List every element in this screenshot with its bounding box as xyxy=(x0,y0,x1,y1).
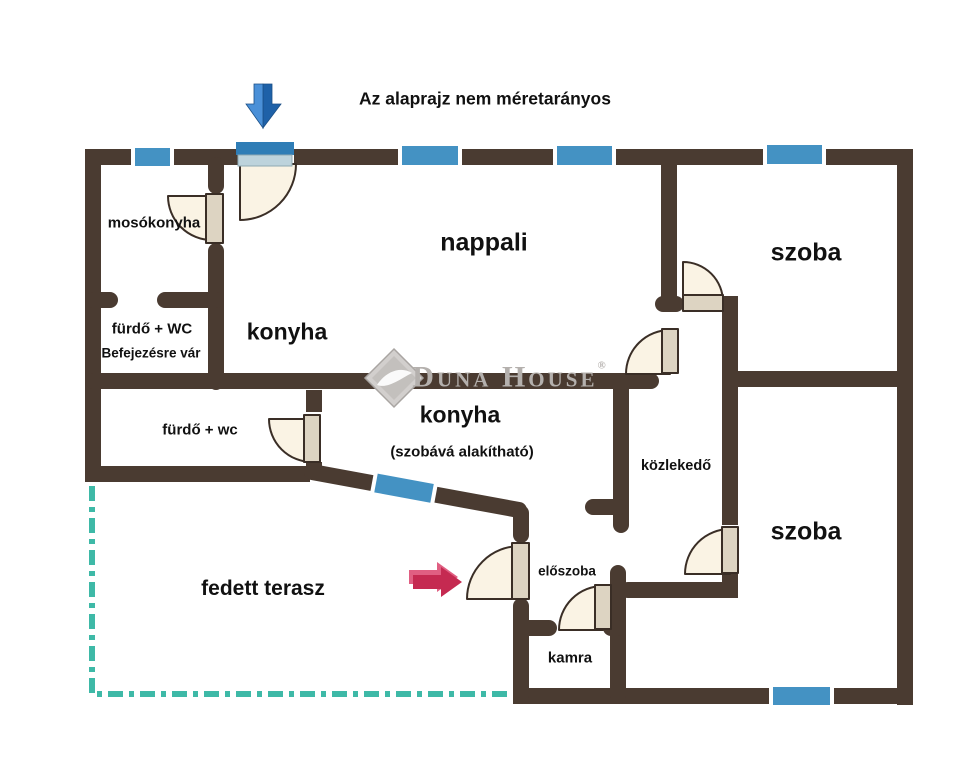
room-label-konyha-lower: konyha xyxy=(420,402,501,429)
watermark-registered-mark: ® xyxy=(597,360,605,372)
room-note-befejezesre-var: Befejezésre vár xyxy=(101,346,200,361)
door-leaf-bedroom-bottom xyxy=(722,527,738,573)
blue-down-arrow-icon xyxy=(246,84,281,128)
room-label-szoba-bottom: szoba xyxy=(771,518,842,547)
window-icon xyxy=(370,472,438,504)
room-label-nappali: nappali xyxy=(440,229,528,258)
watermark-brand: Duna House® xyxy=(412,360,605,395)
room-label-furdo-wc-upper: fürdő + WC xyxy=(112,321,192,338)
watermark-brand-text: Duna House xyxy=(412,361,597,394)
window-icon xyxy=(769,686,834,706)
window-icon xyxy=(131,147,174,167)
door-leaf-pantry xyxy=(595,585,611,629)
door-swing-top-entrance-icon xyxy=(240,164,296,220)
window-icon xyxy=(398,145,462,166)
window-icon xyxy=(763,144,826,165)
wall-hall-south xyxy=(628,573,730,590)
door-leaf-main-entrance xyxy=(512,543,529,599)
room-label-fedett-terasz: fedett terasz xyxy=(201,577,325,601)
window-icon xyxy=(553,145,616,166)
door-leaf-laundry xyxy=(206,194,223,243)
room-label-furdo-wc-lower: fürdő + wc xyxy=(162,422,237,439)
room-label-kozlekedo: közlekedő xyxy=(641,458,711,474)
room-label-konyha-upper: konyha xyxy=(247,319,328,346)
wall-hall-east xyxy=(723,304,730,525)
red-right-arrow-icon xyxy=(409,562,462,597)
room-label-kamra: kamra xyxy=(548,650,592,667)
entrance-transom xyxy=(236,142,294,166)
room-label-eloszoba: előszoba xyxy=(538,564,596,579)
room-note-szobava: (szobává alakítható) xyxy=(390,444,533,461)
plan-title: Az alaprajz nem méretarányos xyxy=(359,89,611,110)
door-leaf-hall xyxy=(662,329,678,373)
room-label-mosokonyha: mosókonyha xyxy=(108,215,201,232)
room-label-szoba-top: szoba xyxy=(771,239,842,268)
door-leaf-bedroom-top xyxy=(683,295,723,311)
door-leaf-bath xyxy=(304,415,320,462)
floorplan: Az alaprajz nem méretarányos mosókonyha … xyxy=(0,0,967,768)
